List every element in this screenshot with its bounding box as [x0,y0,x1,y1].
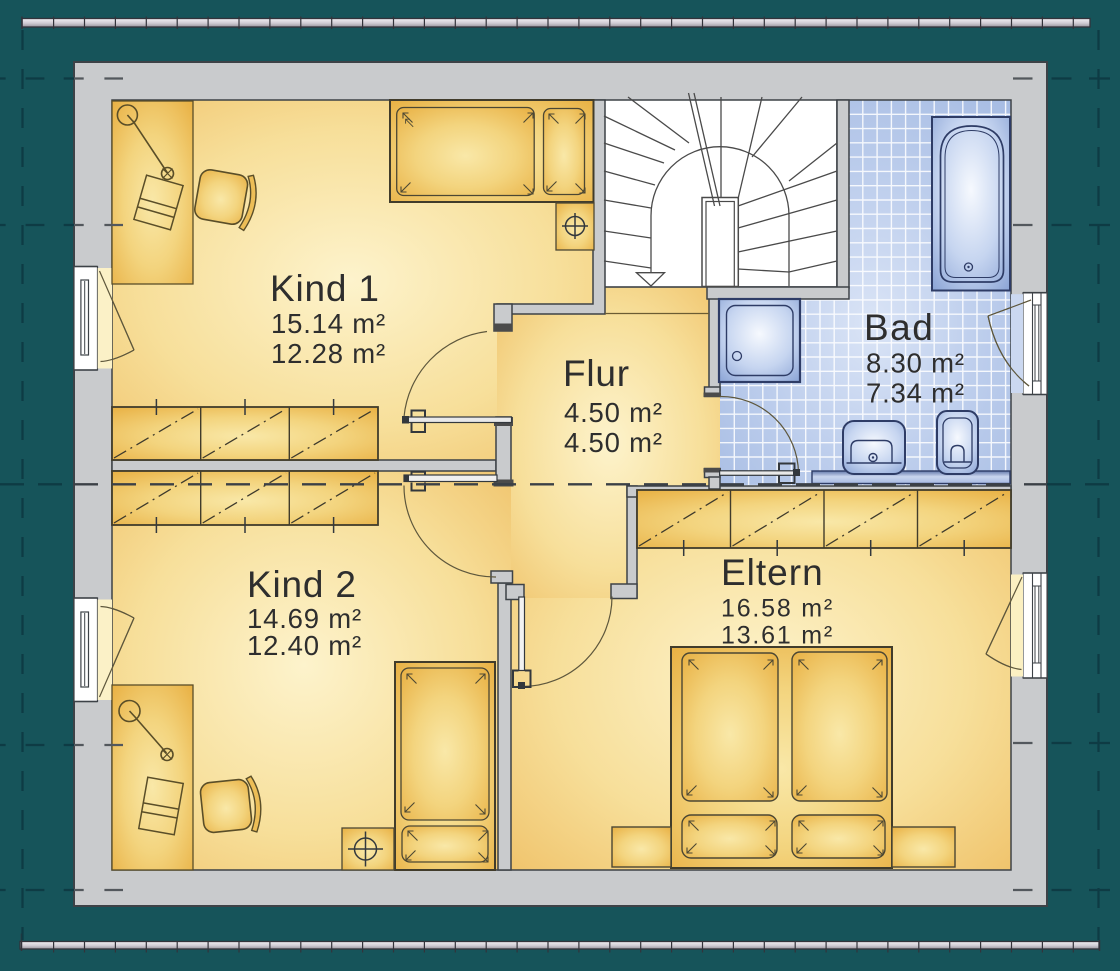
svg-text:Kind 2: Kind 2 [247,564,357,605]
svg-text:4.50 m²: 4.50 m² [564,427,663,458]
svg-text:15.14 m²: 15.14 m² [271,308,386,339]
svg-text:Flur: Flur [563,353,630,394]
svg-text:13.61 m²: 13.61 m² [721,622,834,650]
svg-text:Kind 1: Kind 1 [270,268,380,309]
svg-text:8.30 m²: 8.30 m² [866,348,965,379]
svg-text:7.34 m²: 7.34 m² [866,378,965,409]
svg-text:4.50 m²: 4.50 m² [564,397,663,428]
svg-text:12.28 m²: 12.28 m² [271,338,386,369]
svg-text:12.40 m²: 12.40 m² [247,630,362,661]
svg-text:16.58 m²: 16.58 m² [721,595,834,623]
svg-text:Bad: Bad [864,307,934,348]
svg-text:Eltern: Eltern [721,552,824,593]
